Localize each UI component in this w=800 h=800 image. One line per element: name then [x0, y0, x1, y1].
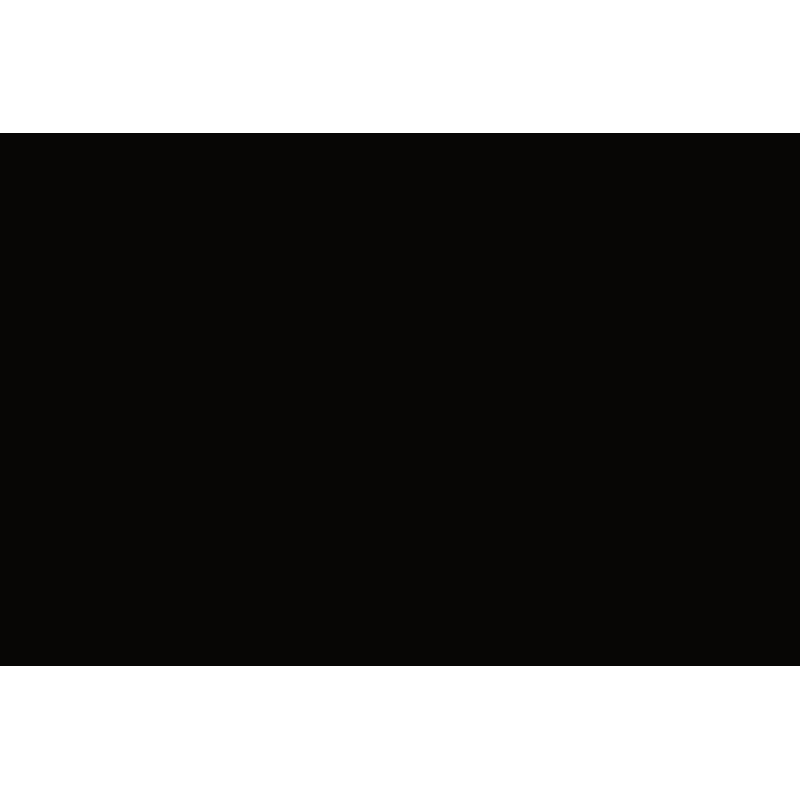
photo-black-backdrop: [0, 133, 800, 666]
photo-page: [0, 0, 800, 800]
